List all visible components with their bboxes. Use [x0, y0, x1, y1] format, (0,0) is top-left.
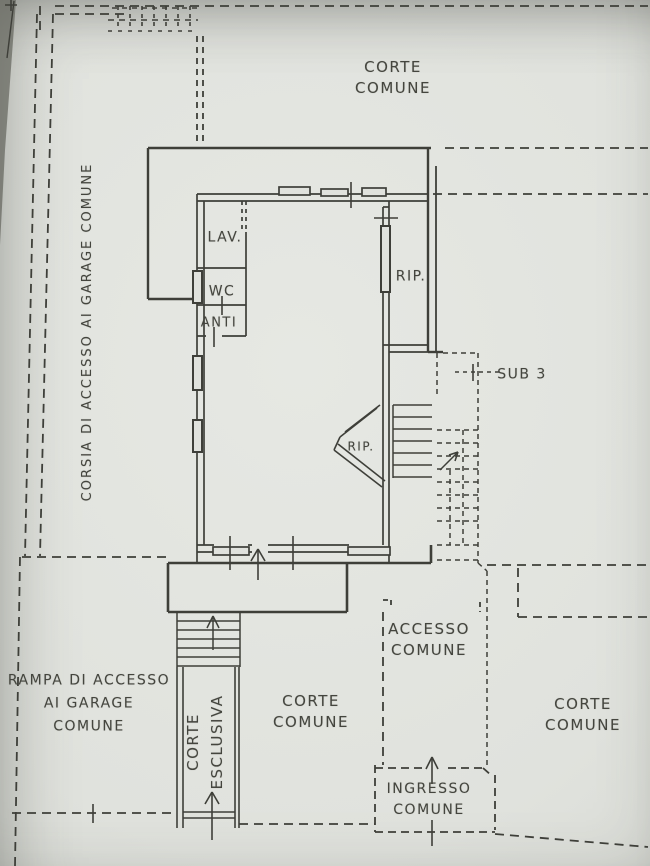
label-rip-grande: RIP.: [396, 267, 427, 288]
label-line: CORTE: [554, 695, 612, 713]
windows: [193, 226, 390, 452]
photo-corner-shadow: [0, 0, 16, 245]
label-corte-comune-top: CORTE COMUNE: [355, 57, 431, 99]
label-line: INGRESSO: [387, 781, 472, 797]
staircase-main: [177, 612, 240, 667]
label-line: COMUNE: [53, 719, 124, 735]
label-line: COMUNE: [545, 716, 621, 734]
label-line: RAMPA DI ACCESSO: [8, 673, 170, 689]
label-line: COMUNE: [391, 641, 467, 659]
hatch-symbol: [108, 6, 198, 31]
label-wc: WC: [209, 282, 236, 303]
label-anti: ANTI: [201, 313, 237, 334]
label-corte-esclusiva: CORTE ESCLUSIVA: [181, 694, 229, 789]
label-rampa-garage: RAMPA DI ACCESSO AI GARAGE COMUNE: [8, 670, 170, 739]
label-rip-piccolo: RIP.: [347, 437, 374, 458]
label-line: ACCESSO: [388, 620, 470, 638]
label-line: COMUNE: [355, 79, 431, 97]
label-sub3: SUB 3: [497, 365, 547, 386]
label-ingresso-comune: INGRESSO COMUNE: [387, 779, 472, 821]
label-line: COMUNE: [273, 713, 349, 731]
label-line: AI GARAGE: [44, 696, 134, 712]
label-corsia-garage: CORSIA DI ACCESSO AI GARAGE COMUNE: [80, 163, 96, 502]
label-line: ESCLUSIVA: [208, 694, 226, 789]
floor-plan-scan: CORTE COMUNE CORSIA DI ACCESSO AI GARAGE…: [0, 0, 650, 866]
label-line: CORTE: [184, 713, 202, 771]
label-corte-comune-destra: CORTE COMUNE: [545, 694, 621, 736]
label-accesso-comune: ACCESSO COMUNE: [388, 619, 470, 661]
garage-block-walls: [148, 148, 443, 352]
label-line: CORTE: [364, 58, 422, 76]
label-lav: LAV.: [207, 228, 242, 249]
label-line: CORTE: [282, 692, 340, 710]
sub3-stairwell: [393, 353, 500, 765]
label-line: COMUNE: [393, 802, 464, 818]
entrance-arrow: [251, 549, 265, 580]
label-corte-comune-centro: CORTE COMUNE: [273, 691, 349, 733]
